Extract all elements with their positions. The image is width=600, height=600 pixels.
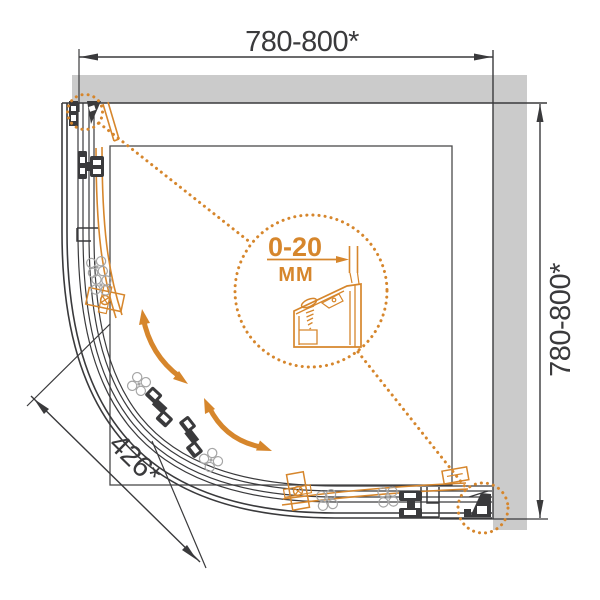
dimension-top-label: 780-800*	[245, 26, 359, 58]
door-handle-2	[171, 415, 212, 458]
track-arc-4	[94, 103, 492, 486]
dimension-right-label: 780-800*	[545, 263, 577, 377]
corner-detail-bottom-right	[464, 491, 491, 517]
fixed-panel-end-left	[77, 228, 99, 241]
dimension-diagonal-label: 426*	[103, 428, 167, 491]
roller-wheel-icon	[316, 489, 338, 511]
screw-thread-icon	[306, 306, 314, 329]
drawing-canvas: 780-800* 780-800* 426* 0-20 ММ	[0, 0, 600, 600]
arrowhead-icon	[139, 309, 150, 325]
arrowhead-icon	[336, 256, 349, 263]
screw-cross-icon	[101, 296, 108, 303]
slide-arrow-upper	[139, 309, 188, 384]
dimension-line	[31, 396, 200, 562]
track-arc-2	[83, 103, 492, 497]
arrowhead-icon	[537, 104, 544, 122]
track-arc-3	[89, 103, 492, 491]
tick-leaders	[350, 273, 359, 284]
slide-arrow-lower	[204, 398, 272, 451]
door-panel-lower	[281, 467, 469, 511]
wall-bracket-left	[78, 151, 104, 179]
shower-enclosure-technical-drawing: 780-800* 780-800* 426* 0-20 ММ	[0, 0, 600, 600]
clamp-slot	[447, 474, 463, 477]
arrowhead-icon	[80, 54, 98, 61]
profile-cross-section	[294, 284, 361, 347]
callout-connector-line	[99, 123, 251, 243]
roller-wheel-icon	[378, 487, 399, 508]
adjustment-unit-label: ММ	[278, 264, 313, 286]
slide-direction-arrows	[139, 309, 272, 451]
wall-top	[72, 75, 527, 103]
screw-cross-icon	[295, 488, 302, 495]
door-upper-wall-profile	[103, 102, 119, 141]
shower-tray-outline	[110, 146, 452, 485]
wall-right	[493, 75, 527, 530]
extension-line	[152, 441, 206, 568]
door-upper-edge-2	[102, 147, 122, 315]
corner-detail-top-left	[69, 101, 101, 126]
adjustment-range-label: 0-20	[268, 232, 322, 262]
arrowhead-icon	[474, 54, 492, 61]
wall-bracket-bottom	[399, 491, 422, 518]
arrowhead-icon	[256, 441, 272, 452]
adjustment-detail: 0-20 ММ	[267, 232, 361, 347]
dimension-entry-diagonal: 426*	[27, 324, 206, 568]
adjustment-ticks	[350, 246, 358, 273]
arrowhead-icon	[537, 500, 544, 518]
callout-connector-line	[358, 352, 466, 488]
